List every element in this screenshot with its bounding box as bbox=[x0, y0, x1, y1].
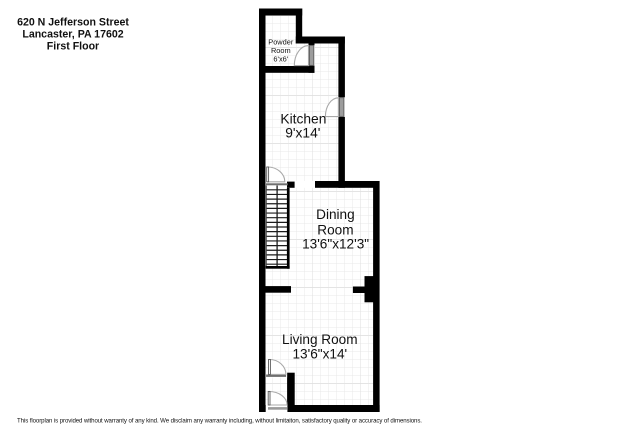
svg-text:13'6"x14': 13'6"x14' bbox=[292, 347, 347, 362]
svg-text:Lancaster, PA 17602: Lancaster, PA 17602 bbox=[22, 29, 123, 41]
svg-text:Kitchen: Kitchen bbox=[280, 112, 326, 127]
svg-text:6'x6': 6'x6' bbox=[273, 54, 288, 63]
svg-text:This floorplan is provided wit: This floorplan is provided without warra… bbox=[17, 417, 422, 424]
svg-text:Living Room: Living Room bbox=[282, 332, 358, 347]
svg-text:620 N Jefferson Street: 620 N Jefferson Street bbox=[17, 16, 129, 28]
svg-text:Room: Room bbox=[317, 222, 353, 237]
svg-text:9'x14': 9'x14' bbox=[285, 126, 320, 141]
svg-text:13'6"x12'3": 13'6"x12'3" bbox=[302, 237, 369, 252]
svg-text:Dining: Dining bbox=[316, 207, 355, 222]
svg-text:First Floor: First Floor bbox=[47, 41, 99, 53]
